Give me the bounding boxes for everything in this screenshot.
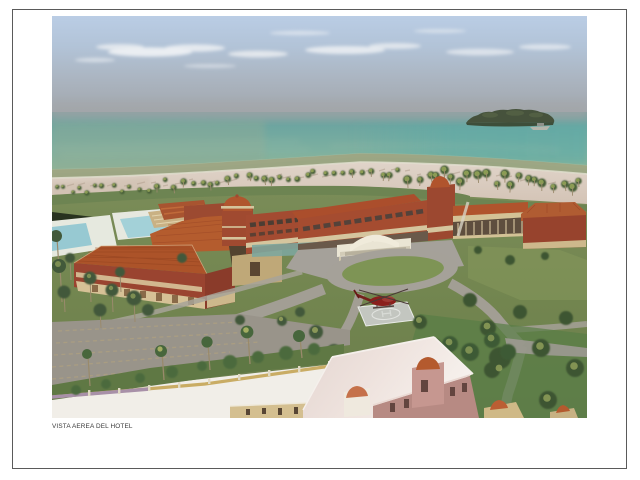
svg-text:VISTA AEREA DEL HOTEL: VISTA AEREA DEL HOTEL [52,423,133,430]
